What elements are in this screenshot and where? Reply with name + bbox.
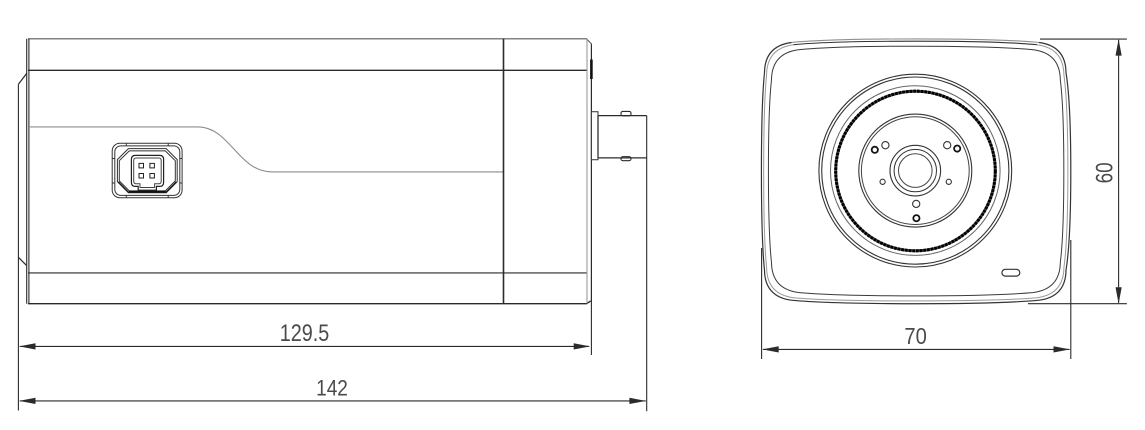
svg-text:129.5: 129.5 bbox=[280, 320, 330, 347]
svg-text:60: 60 bbox=[1091, 162, 1118, 183]
svg-text:70: 70 bbox=[904, 323, 926, 349]
svg-text:142: 142 bbox=[316, 375, 348, 400]
